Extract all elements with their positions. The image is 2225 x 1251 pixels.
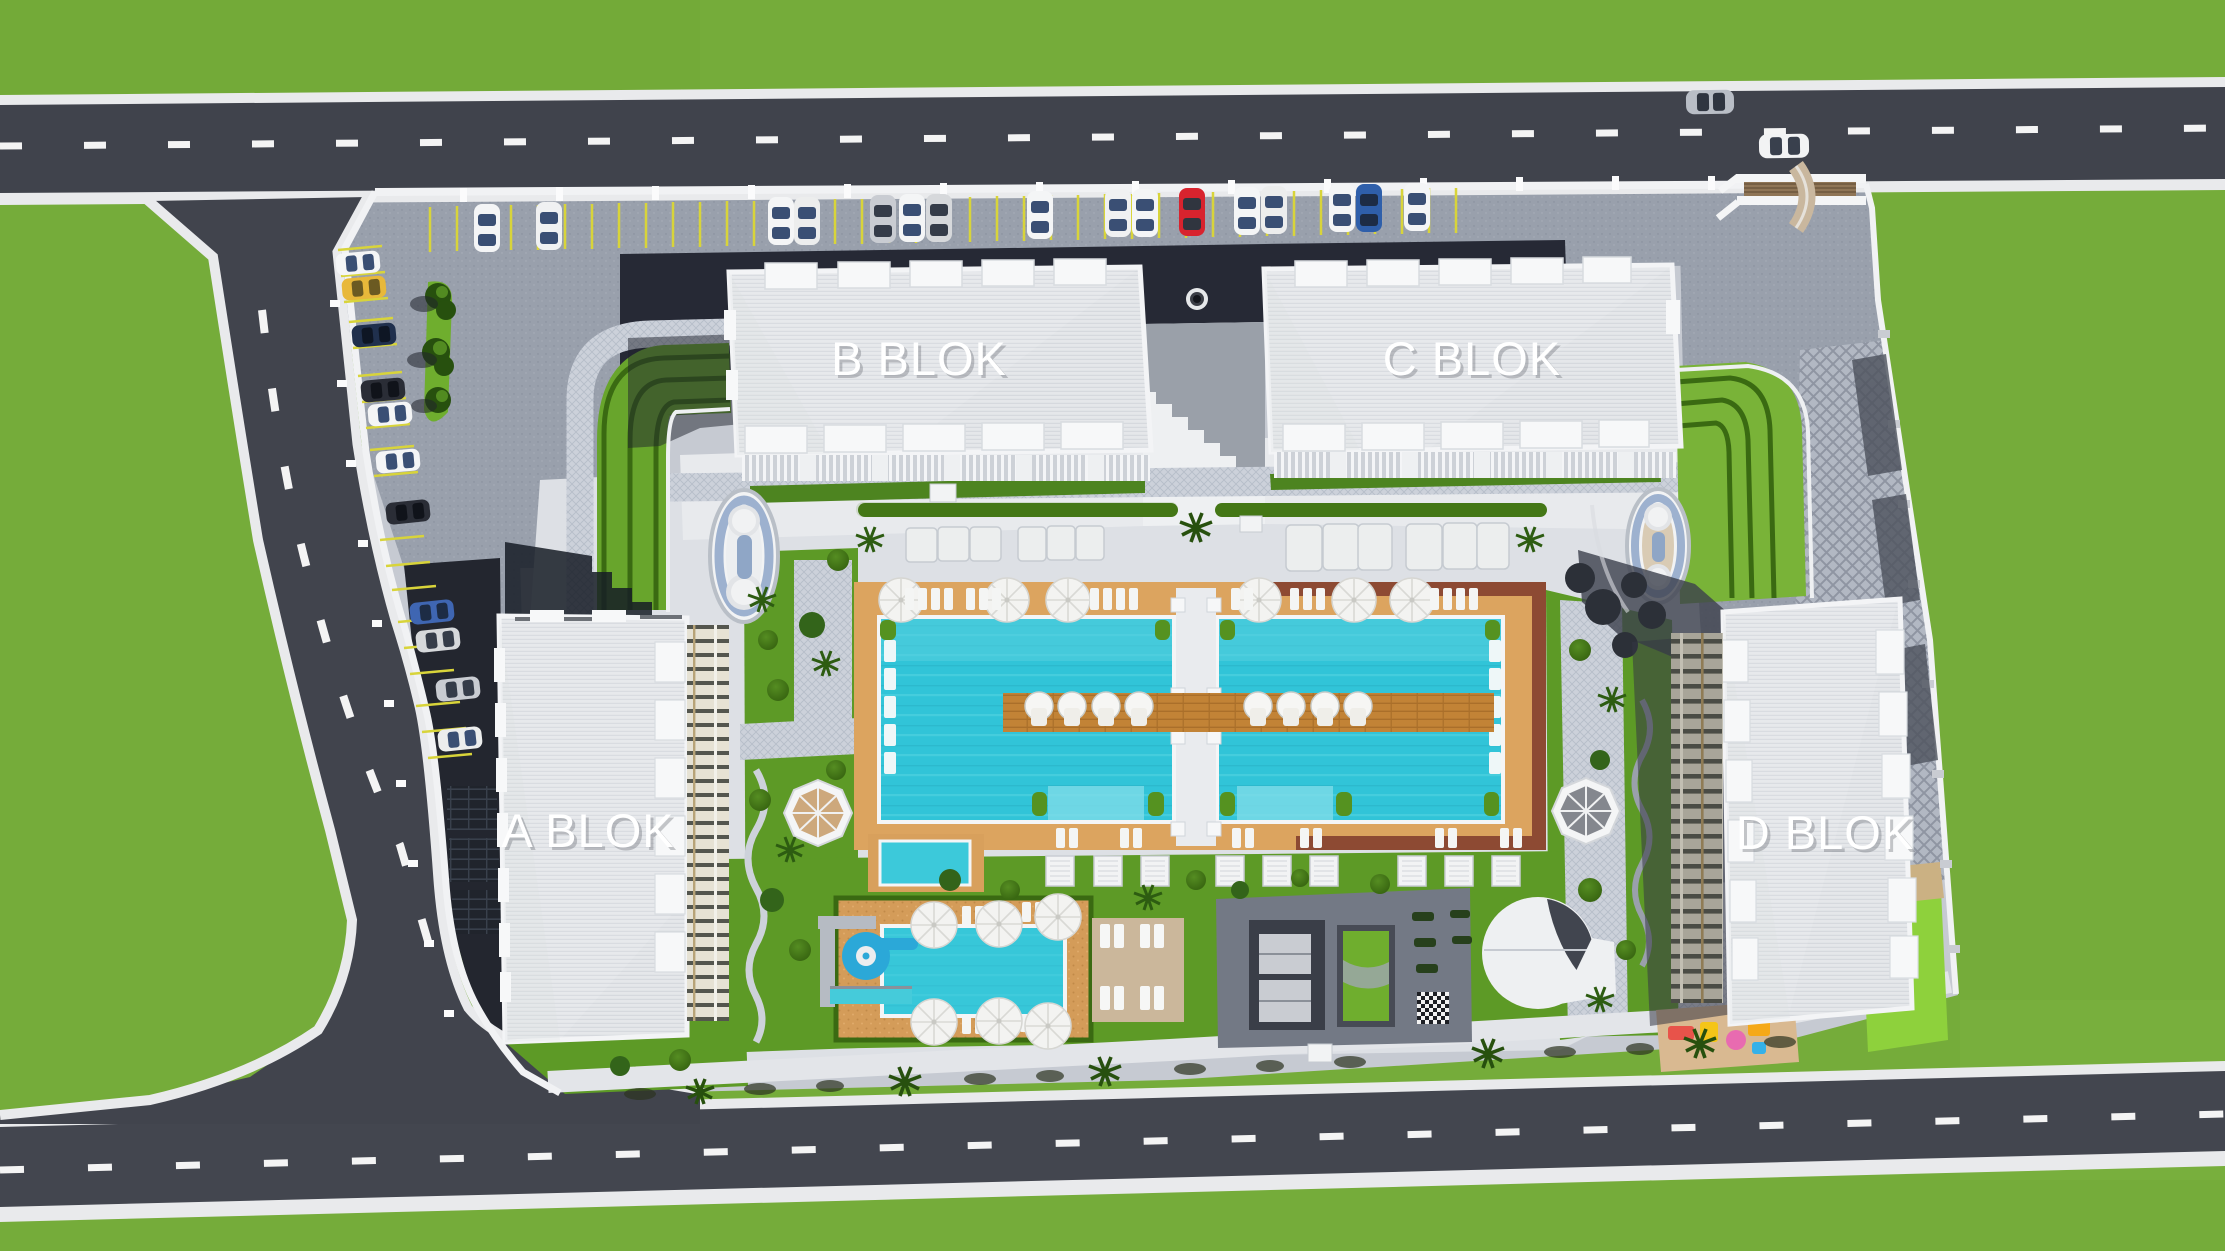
svg-text:B BLOK: B BLOK [831,332,1007,385]
svg-text:D BLOK: D BLOK [1736,806,1914,859]
svg-text:A BLOK: A BLOK [501,804,674,857]
svg-text:C BLOK: C BLOK [1383,332,1561,385]
